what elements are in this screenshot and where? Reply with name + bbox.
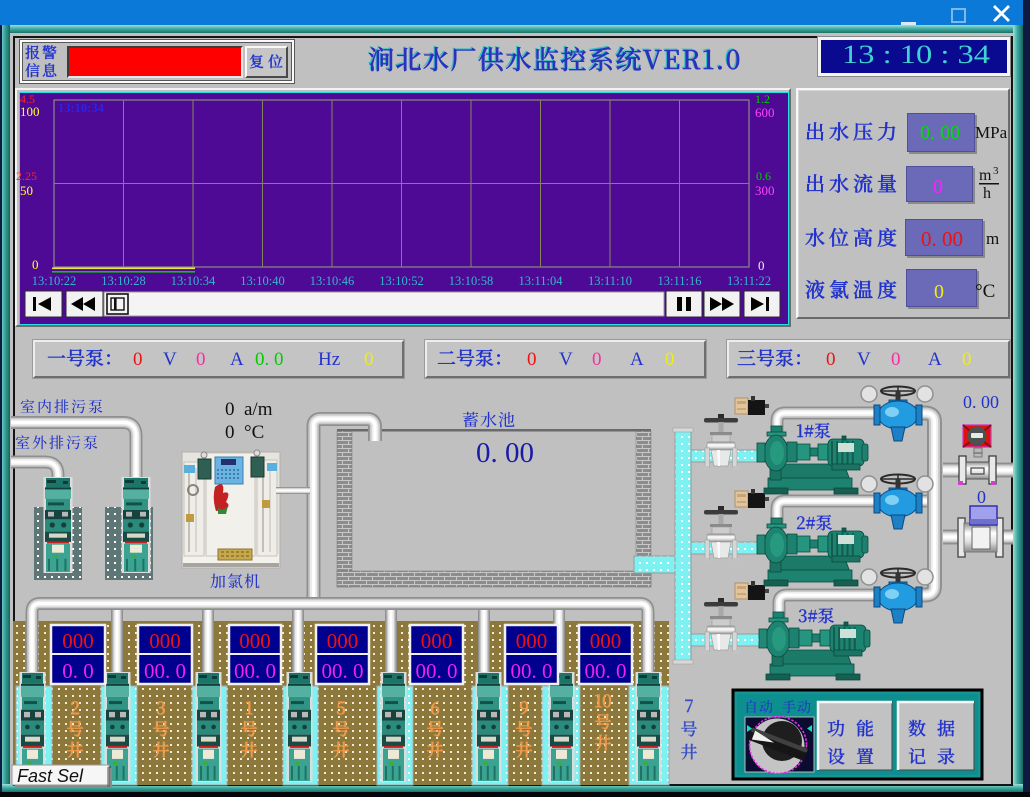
svg-text:m: m — [979, 167, 992, 184]
svg-text:0.6: 0.6 — [756, 169, 771, 183]
svg-text:13:10:46: 13:10:46 — [310, 274, 354, 288]
svg-text:00. 0: 00. 0 — [144, 659, 186, 683]
svg-text:0: 0 — [527, 349, 537, 370]
svg-text:000: 000 — [590, 629, 622, 653]
svg-text:13:10:34: 13:10:34 — [171, 274, 216, 288]
svg-text:0. 0: 0. 0 — [62, 659, 94, 683]
svg-text:13:10:40: 13:10:40 — [240, 274, 284, 288]
svg-text:0. 00: 0. 00 — [963, 392, 999, 412]
svg-text:0 a/m: 0 a/m — [225, 399, 273, 420]
svg-text:0: 0 — [962, 349, 972, 370]
svg-text:50: 50 — [20, 183, 33, 198]
svg-text:00. 0: 00. 0 — [322, 659, 364, 683]
svg-text:13:11:22: 13:11:22 — [727, 274, 771, 288]
svg-text:13:10:58: 13:10:58 — [449, 274, 493, 288]
svg-text:A: A — [630, 349, 644, 370]
svg-text:0. 00: 0. 00 — [920, 122, 960, 144]
svg-text:0: 0 — [934, 281, 944, 303]
svg-text:0. 00: 0. 00 — [476, 437, 534, 469]
svg-text:0: 0 — [364, 349, 374, 370]
svg-text:300: 300 — [755, 183, 775, 198]
svg-text:13:10:28: 13:10:28 — [101, 274, 145, 288]
svg-text:000: 000 — [421, 629, 453, 653]
svg-text:0: 0 — [665, 349, 675, 370]
svg-text:13:10:34: 13:10:34 — [58, 101, 105, 115]
svg-text:000: 000 — [239, 629, 271, 653]
svg-text:000: 000 — [62, 629, 94, 653]
svg-text:h: h — [983, 185, 991, 202]
svg-text:A: A — [928, 349, 942, 370]
svg-text:°C: °C — [975, 281, 995, 302]
svg-text:00. 0: 00. 0 — [234, 659, 276, 683]
svg-text:m: m — [986, 229, 999, 248]
svg-text:3: 3 — [993, 165, 999, 177]
svg-text:0: 0 — [826, 349, 836, 370]
svg-text:13:11:04: 13:11:04 — [519, 274, 564, 288]
svg-text:13 : 10 : 34: 13 : 10 : 34 — [842, 40, 990, 69]
svg-text:0. 0: 0. 0 — [255, 349, 284, 370]
svg-text:0: 0 — [933, 176, 943, 198]
svg-text:0: 0 — [977, 487, 986, 507]
svg-text:000: 000 — [149, 629, 181, 653]
svg-text:00. 0: 00. 0 — [416, 659, 458, 683]
svg-text:000: 000 — [516, 629, 548, 653]
svg-text:0: 0 — [32, 257, 39, 272]
svg-text:A: A — [230, 349, 244, 370]
svg-text:V: V — [163, 349, 177, 370]
svg-text:0 °C: 0 °C — [225, 422, 264, 443]
svg-text:V: V — [857, 349, 871, 370]
svg-text:2.25: 2.25 — [16, 169, 37, 183]
svg-text:V: V — [559, 349, 573, 370]
svg-text:0: 0 — [196, 349, 206, 370]
svg-text:100: 100 — [20, 104, 40, 119]
svg-text:1.2: 1.2 — [755, 92, 770, 106]
svg-text:0: 0 — [758, 258, 765, 273]
svg-text:00. 0: 00. 0 — [585, 659, 627, 683]
svg-text:0: 0 — [592, 349, 602, 370]
svg-text:13:11:10: 13:11:10 — [588, 274, 632, 288]
svg-text:0. 00: 0. 00 — [921, 227, 963, 251]
svg-text:00. 0: 00. 0 — [511, 659, 553, 683]
svg-text:0: 0 — [891, 349, 901, 370]
svg-text:13:10:22: 13:10:22 — [32, 274, 76, 288]
svg-text:0: 0 — [133, 349, 143, 370]
svg-text:Fast Sel: Fast Sel — [17, 766, 84, 786]
svg-text:13:10:52: 13:10:52 — [379, 274, 423, 288]
svg-text:Hz: Hz — [318, 349, 340, 370]
svg-text:13:11:16: 13:11:16 — [658, 274, 702, 288]
svg-text:600: 600 — [755, 105, 775, 120]
svg-text:000: 000 — [327, 629, 359, 653]
svg-text:MPa: MPa — [975, 123, 1008, 142]
